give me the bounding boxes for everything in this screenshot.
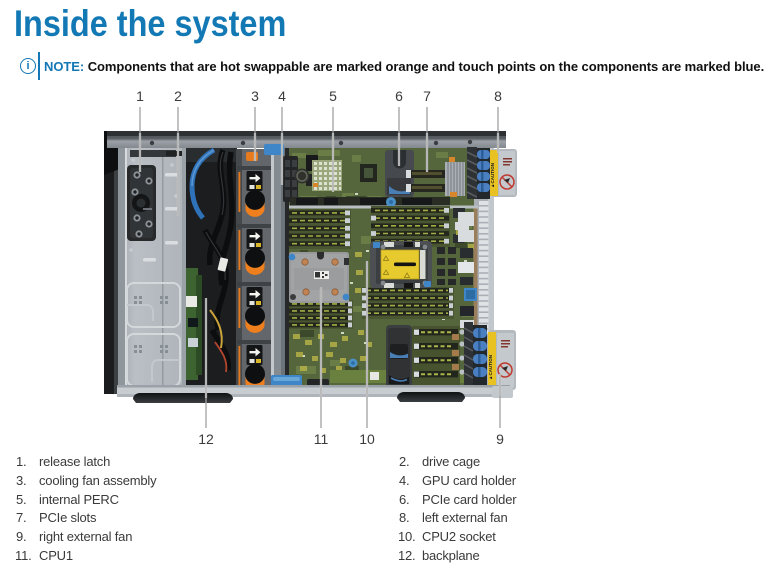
svg-text:2: 2 [174, 88, 182, 104]
svg-text:12: 12 [198, 431, 214, 447]
svg-text:1: 1 [136, 88, 144, 104]
svg-text:8: 8 [494, 88, 502, 104]
svg-text:5: 5 [329, 88, 337, 104]
svg-text:▲CAUTION: ▲CAUTION [490, 163, 495, 188]
svg-text:9: 9 [496, 431, 504, 447]
svg-text:▲CAUTION: ▲CAUTION [488, 355, 493, 380]
svg-text:4: 4 [278, 88, 286, 104]
svg-text:6: 6 [395, 88, 403, 104]
svg-text:10: 10 [359, 431, 375, 447]
svg-text:3: 3 [251, 88, 259, 104]
svg-text:11: 11 [314, 431, 329, 447]
svg-text:7: 7 [423, 88, 431, 104]
